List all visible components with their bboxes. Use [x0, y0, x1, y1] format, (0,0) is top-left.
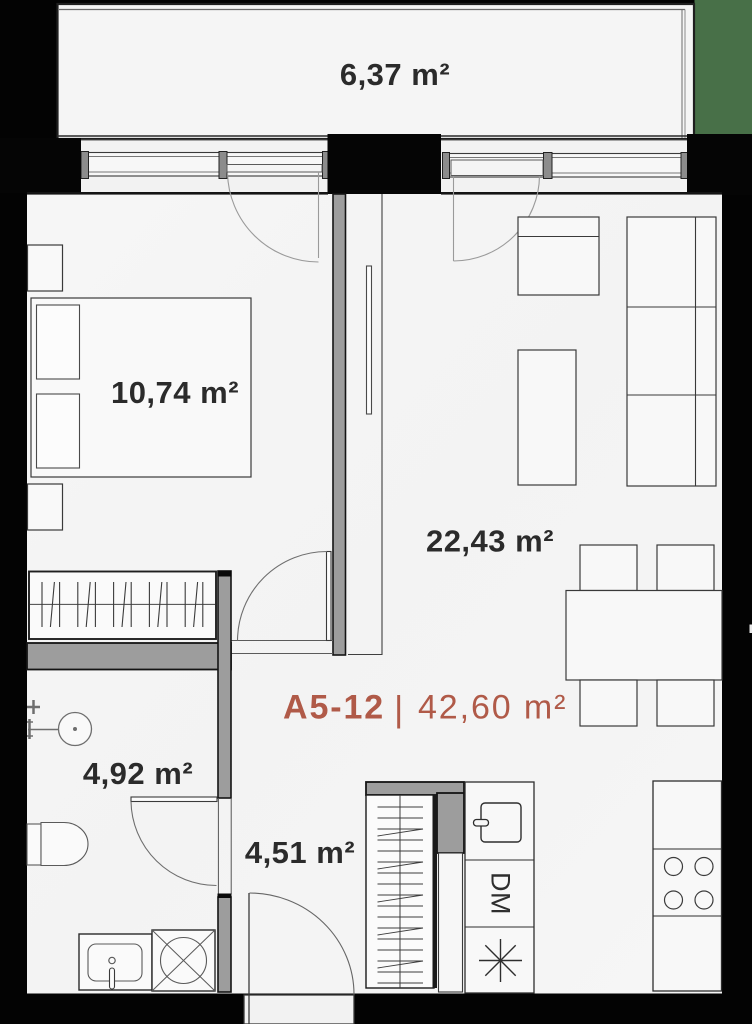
- svg-text:4,92 m²: 4,92 m²: [83, 756, 193, 791]
- svg-text:4,51 m²: 4,51 m²: [245, 835, 355, 870]
- svg-text:42,60 m²: 42,60 m²: [418, 689, 567, 727]
- svg-text:DM: DM: [486, 872, 516, 915]
- svg-text:А5-12: А5-12: [283, 689, 385, 727]
- svg-text:|: |: [394, 688, 403, 729]
- svg-text:10,74 m²: 10,74 m²: [111, 375, 239, 410]
- svg-text:22,43 m²: 22,43 m²: [426, 524, 554, 559]
- svg-text:6,37 m²: 6,37 m²: [340, 57, 450, 92]
